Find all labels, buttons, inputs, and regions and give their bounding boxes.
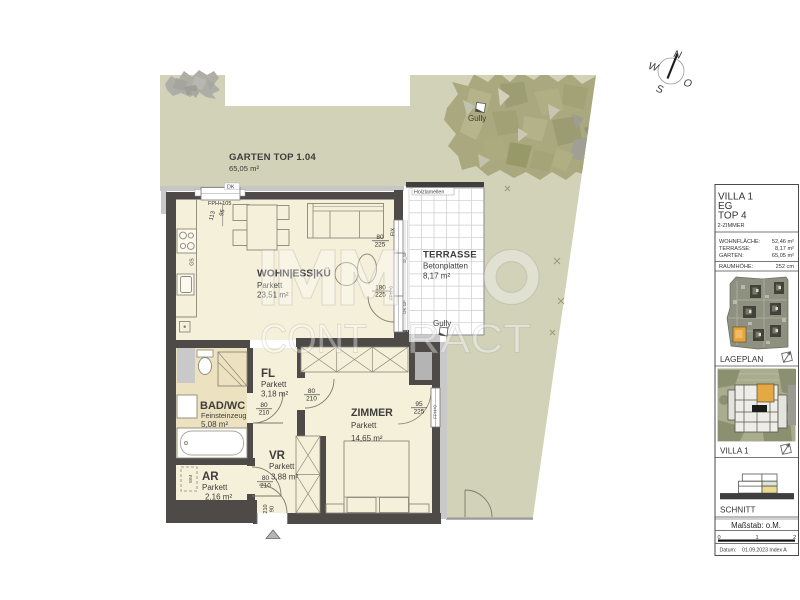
svg-text:WOHNFLÄCHE:: WOHNFLÄCHE: [719, 238, 761, 245]
svg-text:65,05 m²: 65,05 m² [772, 253, 794, 259]
svg-text:AR: AR [202, 471, 219, 483]
svg-text:GARTEN:: GARTEN: [719, 253, 744, 259]
svg-text:2-ZIMMER: 2-ZIMMER [718, 223, 745, 229]
svg-text:65,05 m²: 65,05 m² [229, 164, 259, 173]
svg-text:95: 95 [415, 401, 423, 408]
svg-text:80: 80 [260, 402, 268, 409]
svg-text:DK GF: DK GF [402, 300, 407, 314]
svg-text:80: 80 [376, 234, 384, 241]
svg-text:FPH+0: FPH+0 [433, 405, 438, 419]
svg-text:Gully: Gully [468, 114, 486, 123]
svg-text:5,08 m²: 5,08 m² [201, 420, 228, 429]
svg-text:52,46 m²: 52,46 m² [772, 239, 794, 245]
svg-text:210: 210 [260, 483, 271, 490]
svg-text:210: 210 [259, 410, 270, 417]
svg-text:252 cm: 252 cm [776, 264, 795, 270]
svg-text:Parkett: Parkett [351, 421, 377, 430]
svg-text:Datum: 01.09.2023 Index A: Datum: 01.09.2023 Index A [720, 548, 788, 554]
svg-text:DK: DK [227, 184, 235, 190]
svg-text:14,65 m²: 14,65 m² [351, 434, 383, 443]
svg-text:3,18 m²: 3,18 m² [261, 390, 288, 399]
svg-text:SCHNITT: SCHNITT [720, 506, 755, 515]
svg-text:ZIMMER: ZIMMER [351, 407, 393, 419]
svg-text:GARTEN TOP 1.04: GARTEN TOP 1.04 [229, 152, 316, 163]
svg-text:210: 210 [306, 396, 317, 403]
svg-text:210: 210 [263, 504, 269, 513]
svg-text:Parkett: Parkett [202, 483, 228, 492]
svg-text:90: 90 [270, 506, 276, 512]
svg-text:FL: FL [261, 368, 275, 380]
svg-text:TOP 4: TOP 4 [718, 211, 747, 222]
svg-text:Feinsteinzeug: Feinsteinzeug [201, 411, 246, 420]
svg-text:Parkett: Parkett [269, 462, 295, 471]
svg-text:Parkett: Parkett [261, 380, 287, 389]
svg-text:2,16 m²: 2,16 m² [205, 493, 232, 502]
svg-text:FPH+105: FPH+105 [208, 201, 231, 207]
svg-text:3,88 m²: 3,88 m² [271, 473, 298, 482]
svg-text:TERRASSE: TERRASSE [423, 250, 477, 261]
svg-text:LAGEPLAN: LAGEPLAN [720, 355, 763, 364]
svg-text:WM: WM [188, 475, 193, 483]
svg-text:80: 80 [262, 475, 270, 482]
svg-text:RACT: RACT [407, 316, 531, 362]
svg-text:Betonplatten: Betonplatten [423, 262, 468, 271]
svg-text:8,17 m²: 8,17 m² [423, 272, 450, 281]
svg-text:TERRASSE:: TERRASSE: [719, 246, 751, 252]
svg-text:8,17 m²: 8,17 m² [775, 246, 794, 252]
svg-text:225: 225 [375, 242, 386, 249]
svg-text:CONT: CONT [260, 316, 367, 362]
svg-text:RAUMHÖHE:: RAUMHÖHE: [719, 263, 754, 270]
svg-text:Maßstab: o.M.: Maßstab: o.M. [731, 521, 781, 530]
svg-text:FIX: FIX [391, 227, 397, 236]
svg-text:GS: GS [190, 258, 196, 266]
svg-text:80: 80 [308, 388, 316, 395]
svg-text:VR: VR [269, 450, 286, 462]
svg-text:Holzlamellen: Holzlamellen [414, 190, 444, 196]
svg-text:225: 225 [414, 409, 425, 416]
svg-text:VILLA 1: VILLA 1 [720, 447, 749, 456]
svg-text:D_SF: D_SF [402, 251, 407, 263]
